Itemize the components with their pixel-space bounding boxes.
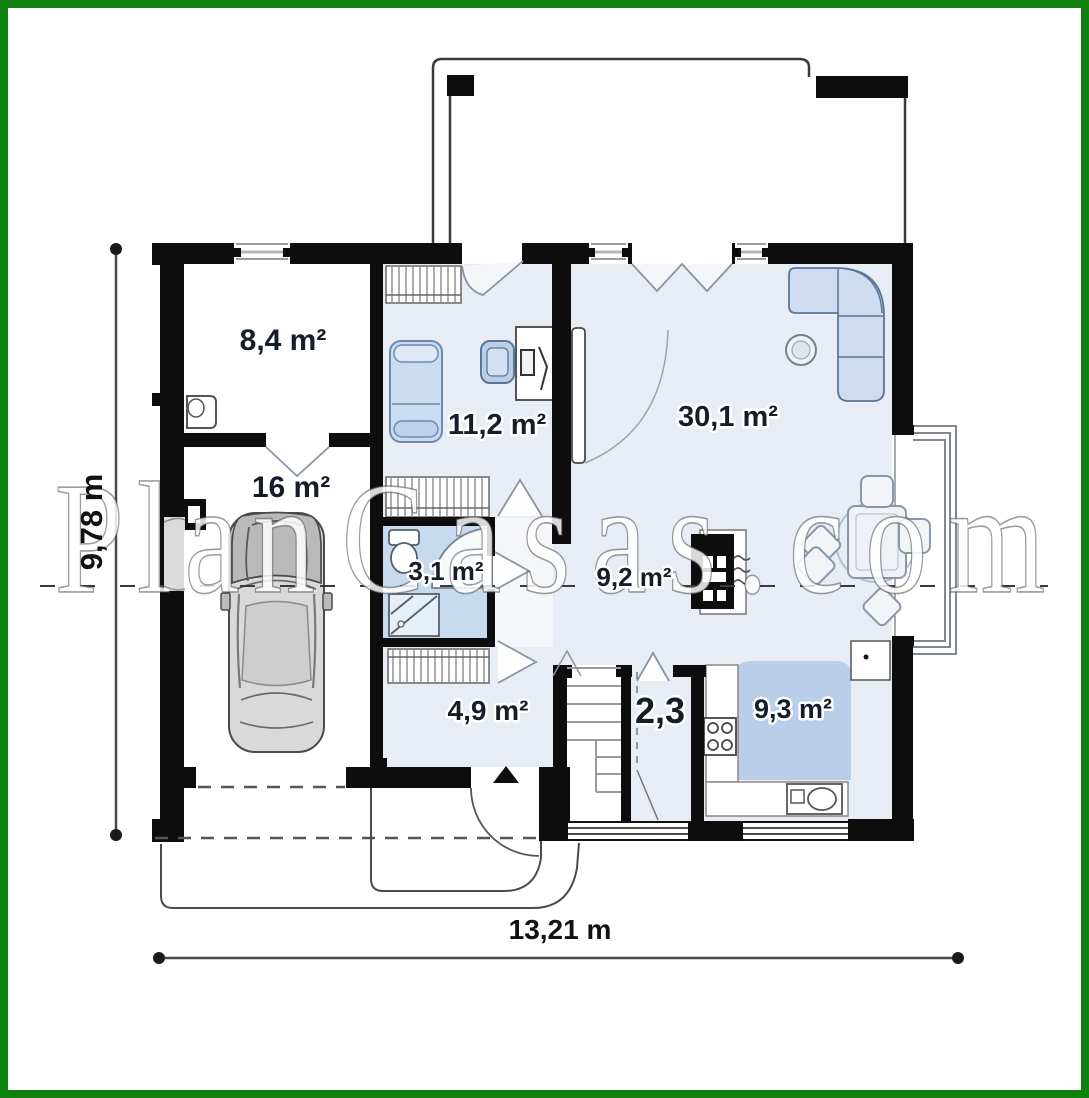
svg-text:11,2 m²: 11,2 m² (448, 409, 547, 441)
svg-text:16 m²: 16 m² (252, 471, 330, 504)
svg-text:9,2 m²: 9,2 m² (596, 562, 671, 592)
svg-text:9,78 m: 9,78 m (74, 474, 109, 571)
svg-text:8,4 m²: 8,4 m² (240, 324, 327, 357)
svg-text:2,3: 2,3 (635, 690, 685, 731)
svg-text:3,1 m²: 3,1 m² (408, 556, 483, 586)
svg-text:30,1 m²: 30,1 m² (678, 401, 778, 433)
svg-text:13,21 m: 13,21 m (509, 914, 612, 945)
svg-text:9,3 m²: 9,3 m² (754, 694, 832, 724)
svg-text:4,9 m²: 4,9 m² (448, 695, 529, 726)
